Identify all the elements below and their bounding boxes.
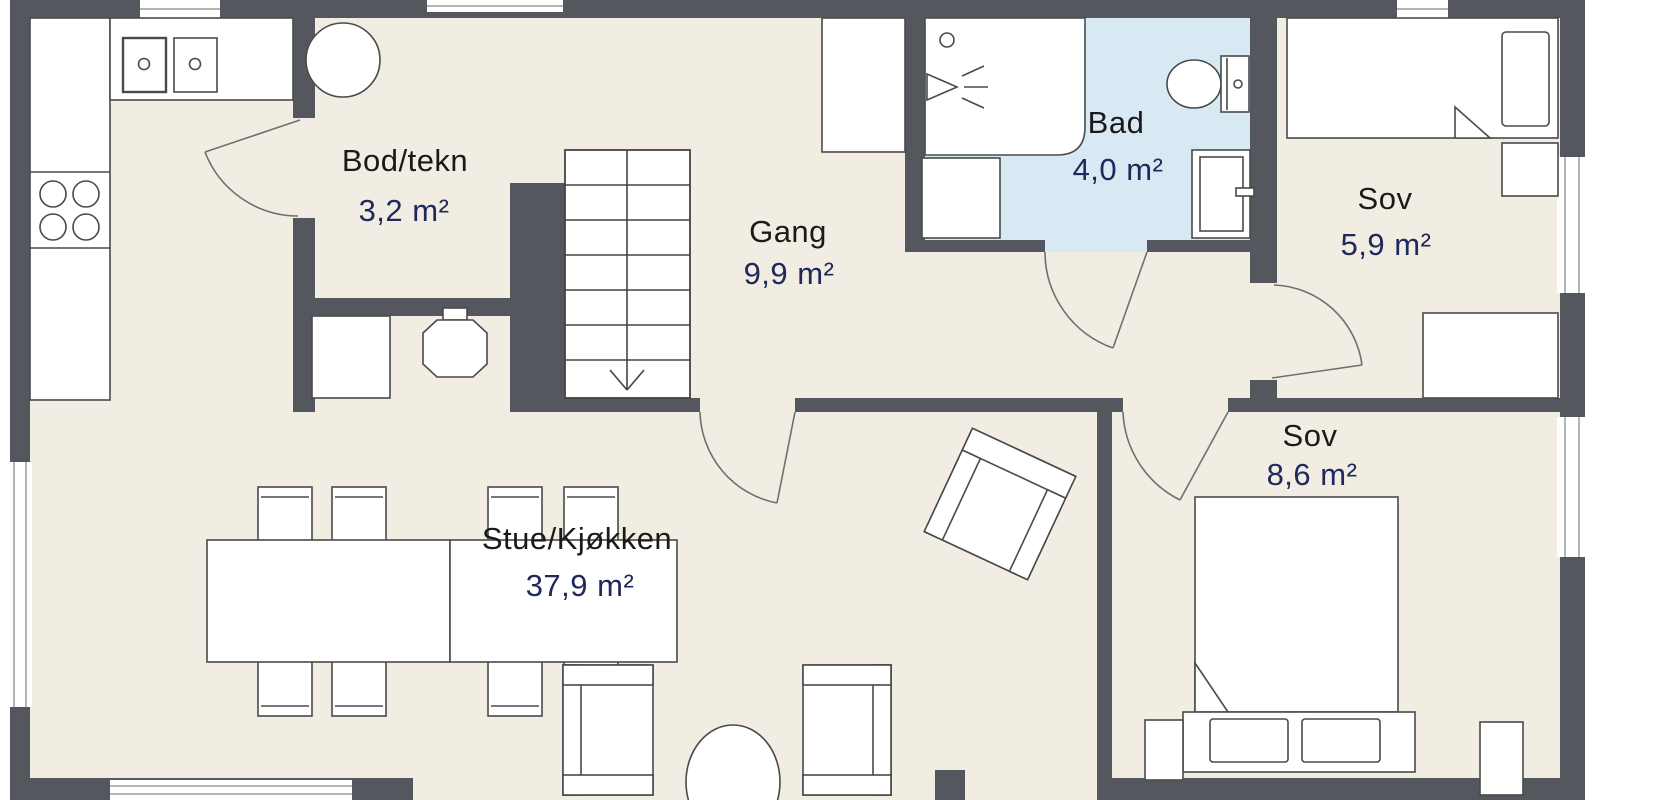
kitchen-counter-left (30, 18, 110, 400)
bathroom-cabinet (922, 158, 1000, 238)
window-right-sov2 (1557, 417, 1587, 557)
pillow (1502, 32, 1549, 126)
wall-stairs-left (510, 183, 565, 412)
dining-table (207, 540, 450, 662)
wall-bottom-pier (935, 770, 965, 800)
wall-top (10, 0, 1585, 18)
room-area-sov2: 8,6 m² (1267, 457, 1358, 493)
floor-plan: Bod/tekn 3,2 m² Gang 9,9 m² Bad 4,0 m² S… (0, 0, 1670, 800)
toilet-icon (1167, 60, 1221, 108)
room-name-sov1: Sov (1358, 181, 1413, 217)
wall-bath-bottom-right (1147, 240, 1250, 252)
room-name-stue: Stue/Kjøkken (482, 521, 672, 557)
desk (1423, 313, 1558, 398)
pillow (1302, 719, 1380, 762)
room-name-gang: Gang (749, 214, 827, 250)
nightstand (1502, 143, 1558, 196)
vanity-handle (1236, 188, 1254, 196)
kitchen-sink-icon (123, 38, 166, 92)
lounge-chair-left (563, 665, 653, 795)
room-area-stue: 37,9 m² (526, 568, 635, 604)
wall-bath-bottom-left (905, 240, 1045, 252)
window-left-stue (8, 462, 32, 707)
room-name-bad: Bad (1088, 105, 1145, 141)
boiler-icon (423, 320, 487, 377)
room-name-sov2: Sov (1283, 418, 1338, 454)
staircase (565, 150, 690, 398)
wall-below-stairs (510, 398, 700, 412)
shower-cabin (925, 18, 1085, 155)
boiler-stub (443, 308, 467, 320)
double-bed (1195, 497, 1398, 712)
window-right-sov1 (1557, 157, 1587, 293)
toilet-tank (1221, 56, 1249, 112)
room-name-bod: Bod/tekn (342, 143, 468, 179)
hall-wardrobe (822, 18, 905, 152)
room-area-gang: 9,9 m² (744, 256, 835, 292)
room-area-sov1: 5,9 m² (1341, 227, 1432, 263)
window-bottom-stue (110, 780, 352, 800)
nightstand (1145, 720, 1183, 780)
wall-sov1-stub (1250, 380, 1277, 412)
room-area-bad: 4,0 m² (1073, 152, 1164, 188)
wall-sov2-left (1097, 412, 1112, 800)
wall-bath-right (1250, 18, 1277, 283)
kitchen-sink-icon (174, 38, 217, 92)
lounge-chair-right (803, 665, 891, 795)
wall-sov2-top (1228, 398, 1585, 412)
pillow (1210, 719, 1288, 762)
room-area-bod: 3,2 m² (359, 193, 450, 229)
washing-machine-icon (312, 316, 390, 398)
bod-door-opening (293, 118, 315, 218)
floor-plan-drawing (0, 0, 1670, 800)
water-tank-icon (306, 23, 380, 97)
nightstand (1480, 722, 1523, 795)
wall-gang-stue (795, 398, 1123, 412)
